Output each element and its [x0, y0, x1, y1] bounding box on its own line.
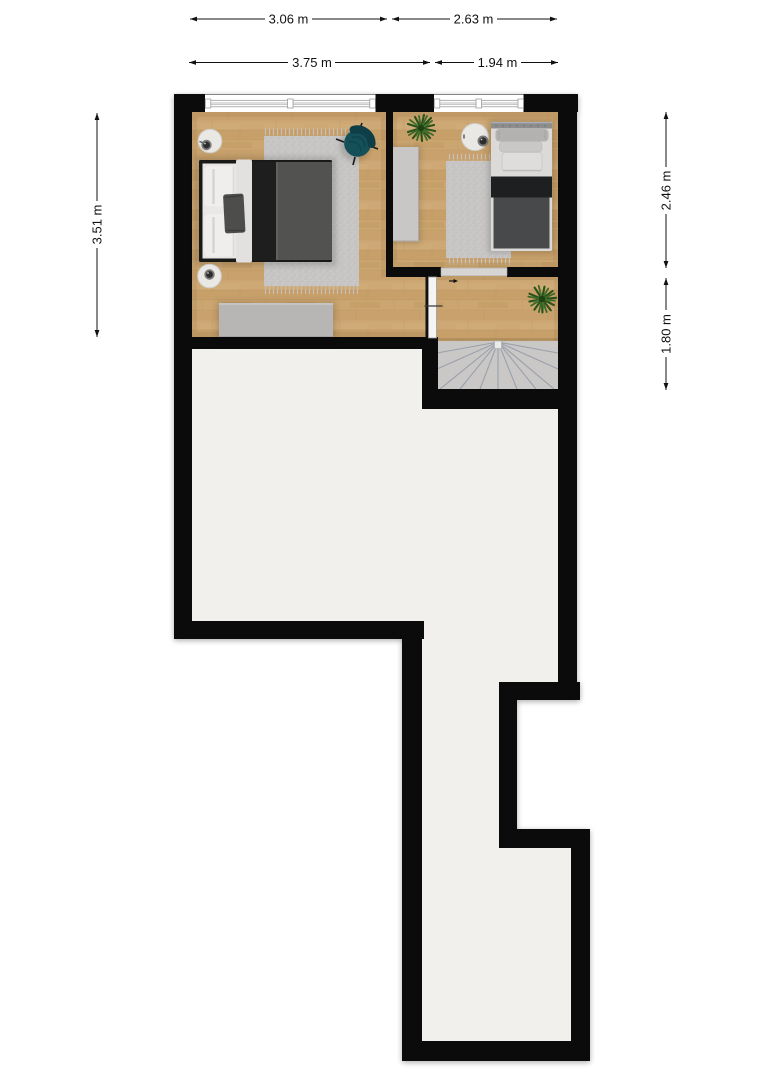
- svg-text:2.46 m: 2.46 m: [659, 171, 674, 211]
- svg-text:3.06 m: 3.06 m: [269, 12, 309, 27]
- svg-text:1.94 m: 1.94 m: [478, 55, 518, 70]
- svg-text:1.80 m: 1.80 m: [659, 314, 674, 354]
- svg-text:3.51 m: 3.51 m: [90, 205, 105, 245]
- svg-text:2.63 m: 2.63 m: [454, 12, 494, 27]
- svg-text:3.75 m: 3.75 m: [292, 55, 332, 70]
